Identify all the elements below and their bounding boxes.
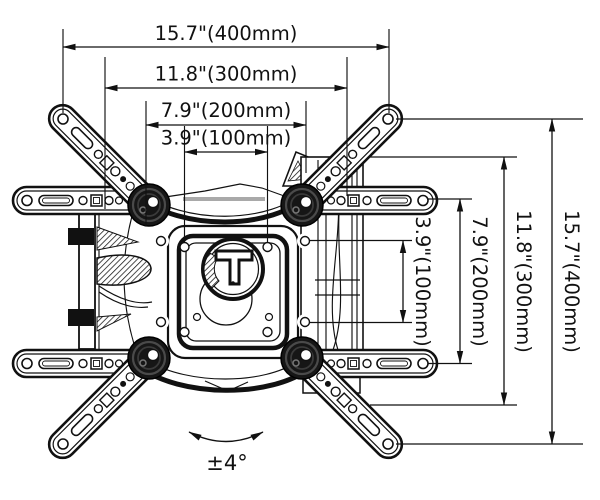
pivot-joint-upper-left — [128, 184, 170, 226]
pivot-joint-upper-right — [281, 184, 323, 226]
wall-bracket-left — [68, 213, 152, 349]
pivot-joint-lower-left — [128, 337, 170, 379]
pivot-joint-lower-right — [281, 337, 323, 379]
dim-horizontal-300-label: 11.8"(300mm) — [155, 63, 298, 86]
wall-mount-dimension-diagram: 15.7"(400mm) 11.8"(300mm) 7.9"(200mm) 3.… — [0, 0, 600, 500]
dim-vertical-300-label: 11.8"(300mm) — [512, 210, 535, 353]
tilt-angle-label: ±4° — [206, 451, 247, 475]
tilt-annotation: ±4° — [189, 432, 263, 475]
center-vesa-plate — [153, 226, 313, 358]
technical-drawing-canvas: 15.7"(400mm) 11.8"(300mm) 7.9"(200mm) 3.… — [0, 0, 600, 500]
dim-horizontal-100-label: 3.9"(100mm) — [161, 127, 291, 150]
tilt-arc-arrow-icon — [189, 432, 263, 442]
dim-vertical-100-label: 3.9"(100mm) — [411, 216, 434, 346]
dim-vertical-400-label: 15.7"(400mm) — [560, 210, 583, 353]
dim-horizontal-400-label: 15.7"(400mm) — [155, 22, 298, 45]
dim-vertical-200-label: 7.9"(200mm) — [468, 216, 491, 346]
dim-horizontal-200-label: 7.9"(200mm) — [161, 99, 291, 122]
